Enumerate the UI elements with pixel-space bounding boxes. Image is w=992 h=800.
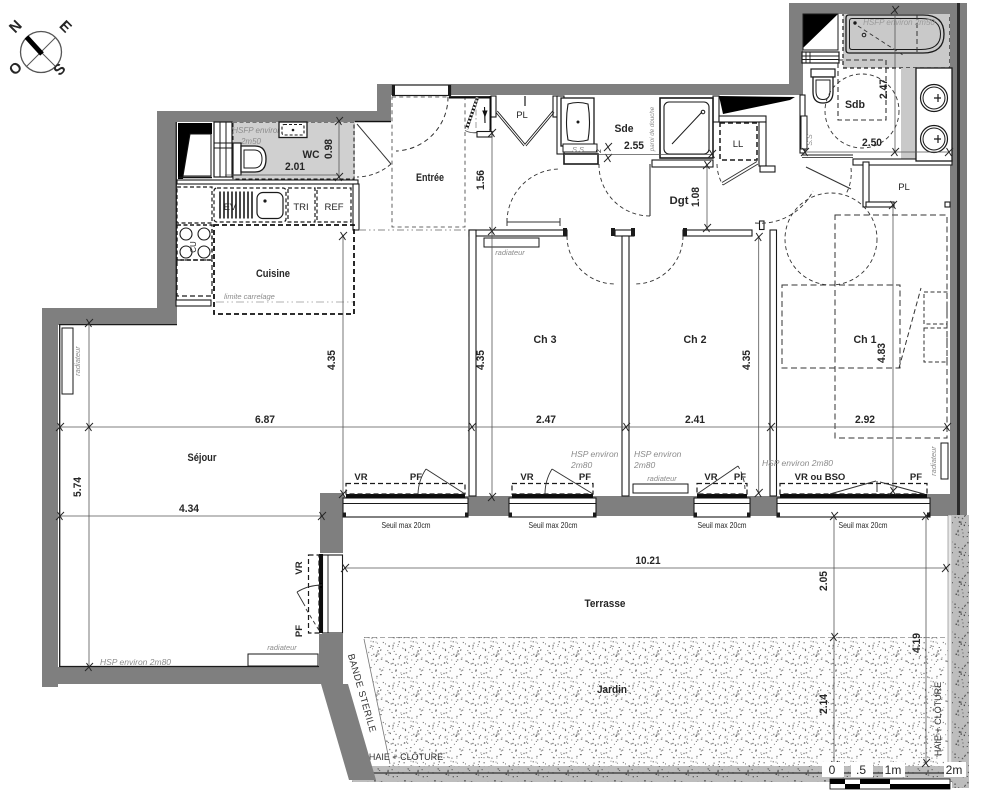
svg-text:Ch 1: Ch 1 bbox=[854, 334, 877, 346]
svg-text:2m80: 2m80 bbox=[570, 460, 593, 470]
svg-text:2m80: 2m80 bbox=[633, 460, 656, 470]
svg-text:HSFP environ: HSFP environ bbox=[232, 126, 282, 135]
svg-text:Seuil max 20cm: Seuil max 20cm bbox=[839, 520, 888, 530]
svg-text:1.08: 1.08 bbox=[690, 187, 702, 207]
svg-text:HSFP environ 2m50: HSFP environ 2m50 bbox=[863, 18, 935, 27]
svg-text:Ch 2: Ch 2 bbox=[684, 334, 707, 346]
svg-text:EV: EV bbox=[224, 202, 237, 213]
svg-text:VR ou BSO: VR ou BSO bbox=[795, 472, 846, 483]
svg-text:limite carrelage: limite carrelage bbox=[224, 292, 275, 301]
svg-text:radiateur: radiateur bbox=[267, 643, 297, 652]
svg-text:VR: VR bbox=[294, 561, 305, 574]
svg-text:Ch 3: Ch 3 bbox=[534, 334, 557, 346]
svg-text:4.35: 4.35 bbox=[326, 350, 338, 370]
svg-text:HAIE + CLÔTURE: HAIE + CLÔTURE bbox=[369, 752, 443, 762]
svg-text:VR: VR bbox=[520, 472, 533, 483]
svg-text:1m: 1m bbox=[885, 763, 902, 777]
svg-text:1.56: 1.56 bbox=[475, 170, 487, 190]
svg-text:10.21: 10.21 bbox=[636, 555, 661, 567]
svg-text:WC: WC bbox=[303, 149, 320, 161]
svg-text:PL: PL bbox=[516, 110, 528, 121]
svg-text:2.01: 2.01 bbox=[285, 161, 305, 173]
svg-text:Dgt: Dgt bbox=[670, 195, 689, 207]
svg-text:HSP environ 2m80: HSP environ 2m80 bbox=[762, 458, 833, 468]
svg-text:4.35: 4.35 bbox=[741, 350, 753, 370]
svg-text:radiateur: radiateur bbox=[929, 446, 938, 476]
svg-text:Seuil max 20cm: Seuil max 20cm bbox=[698, 520, 747, 530]
svg-text:radiateur: radiateur bbox=[647, 474, 677, 483]
svg-text:.5: .5 bbox=[856, 763, 866, 777]
svg-text:PF: PF bbox=[294, 625, 305, 637]
svg-text:S.S: S.S bbox=[807, 134, 814, 146]
svg-text:6.87: 6.87 bbox=[255, 414, 275, 426]
svg-text:HSP environ: HSP environ bbox=[571, 449, 619, 459]
svg-text:PL: PL bbox=[898, 182, 910, 193]
svg-text:S.S: S.S bbox=[572, 145, 584, 154]
svg-text:paroi de douche: paroi de douche bbox=[649, 106, 656, 152]
svg-text:CU: CU bbox=[189, 241, 198, 253]
svg-text:0.98: 0.98 bbox=[323, 139, 335, 159]
svg-text:2: 2 bbox=[596, 149, 603, 153]
svg-text:Seuil max 20cm: Seuil max 20cm bbox=[529, 520, 578, 530]
svg-text:PF: PF bbox=[910, 472, 922, 483]
svg-text:2.41: 2.41 bbox=[685, 414, 705, 426]
svg-text:Séjour: Séjour bbox=[188, 452, 218, 464]
svg-text:4.34: 4.34 bbox=[179, 503, 200, 515]
svg-text:Terrasse: Terrasse bbox=[585, 598, 626, 610]
svg-text:2.05: 2.05 bbox=[818, 571, 830, 591]
svg-text:HSP environ 2m80: HSP environ 2m80 bbox=[100, 657, 171, 667]
svg-text:Cuisine: Cuisine bbox=[256, 268, 290, 280]
svg-text:5.74: 5.74 bbox=[72, 476, 84, 497]
svg-text:4.19: 4.19 bbox=[911, 633, 923, 653]
svg-text:HAIE + CLÔTURE: HAIE + CLÔTURE bbox=[933, 682, 943, 756]
svg-text:2.92: 2.92 bbox=[855, 414, 875, 426]
svg-text:4.35: 4.35 bbox=[475, 350, 487, 370]
svg-text:Sdb: Sdb bbox=[845, 99, 865, 111]
svg-text:2.55: 2.55 bbox=[624, 140, 644, 152]
svg-text:2m: 2m bbox=[946, 763, 963, 777]
svg-text:Sde: Sde bbox=[615, 123, 634, 135]
svg-text:Entrée: Entrée bbox=[416, 172, 444, 184]
svg-text:radiateur: radiateur bbox=[73, 346, 82, 376]
svg-text:4.83: 4.83 bbox=[876, 343, 888, 363]
svg-text:2.47: 2.47 bbox=[878, 79, 890, 99]
svg-text:0: 0 bbox=[829, 763, 836, 777]
svg-text:radiateur: radiateur bbox=[495, 248, 525, 257]
svg-text:2m50: 2m50 bbox=[240, 137, 262, 146]
svg-text:2.14: 2.14 bbox=[818, 693, 830, 714]
svg-text:2.50: 2.50 bbox=[862, 137, 882, 149]
svg-text:TRI: TRI bbox=[293, 202, 308, 213]
svg-text:2.47: 2.47 bbox=[536, 414, 556, 426]
svg-text:LL: LL bbox=[733, 139, 744, 150]
svg-text:Jardin: Jardin bbox=[597, 684, 627, 696]
svg-text:HSP environ: HSP environ bbox=[634, 449, 682, 459]
svg-text:VR: VR bbox=[354, 472, 367, 483]
svg-text:Seuil max 20cm: Seuil max 20cm bbox=[382, 520, 431, 530]
svg-text:REF: REF bbox=[325, 202, 344, 213]
svg-text:PF: PF bbox=[579, 472, 591, 483]
